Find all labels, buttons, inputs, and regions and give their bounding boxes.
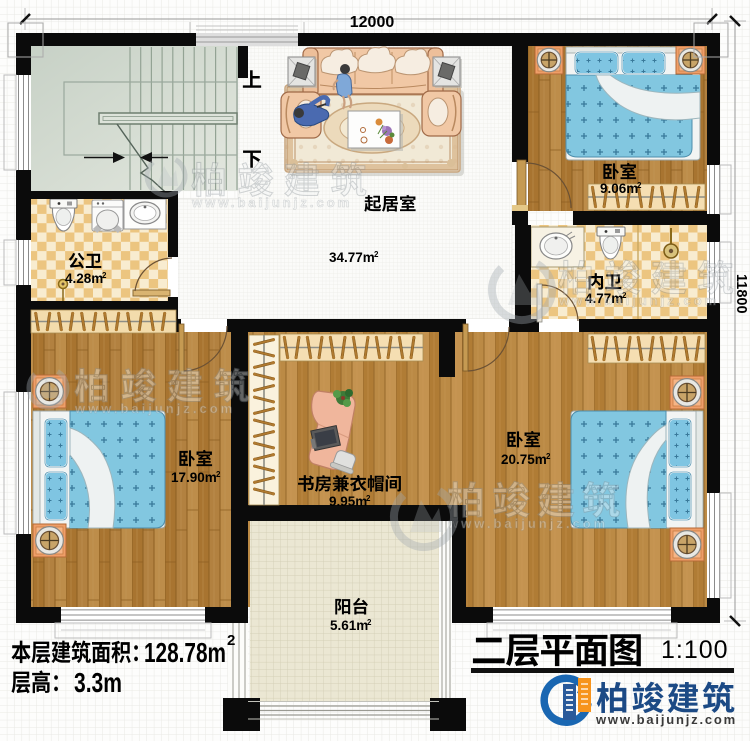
- svg-text:2: 2: [216, 470, 221, 479]
- svg-text:www.baijunjz.com: www.baijunjz.com: [595, 712, 737, 727]
- svg-text:2: 2: [227, 632, 235, 649]
- svg-text:2: 2: [367, 618, 372, 627]
- svg-text:3.3m: 3.3m: [74, 667, 122, 698]
- svg-text:9.95m: 9.95m: [329, 494, 367, 509]
- svg-text:20.75m: 20.75m: [501, 452, 547, 467]
- svg-text:www.baijunjz.com: www.baijunjz.com: [74, 401, 235, 416]
- svg-text:17.90m: 17.90m: [171, 470, 217, 485]
- svg-text:2: 2: [637, 181, 642, 190]
- svg-text:9.06m: 9.06m: [600, 181, 638, 196]
- svg-text:www.baijunjz.com: www.baijunjz.com: [558, 293, 719, 308]
- svg-text:2: 2: [102, 271, 107, 280]
- svg-text:128.78m: 128.78m: [144, 637, 226, 668]
- svg-text:2: 2: [546, 452, 551, 461]
- svg-text:2: 2: [366, 494, 371, 503]
- svg-text:www.baijunjz.com: www.baijunjz.com: [447, 516, 608, 531]
- svg-text:1:100: 1:100: [661, 636, 729, 664]
- svg-text:www.baijunjz.com: www.baijunjz.com: [191, 195, 352, 210]
- svg-text:2: 2: [374, 250, 379, 259]
- svg-text:12000: 12000: [350, 14, 395, 31]
- svg-text:4.28m: 4.28m: [65, 271, 103, 286]
- svg-text:5.61m: 5.61m: [330, 618, 368, 633]
- svg-text:11800: 11800: [733, 274, 749, 314]
- svg-text:34.77m: 34.77m: [329, 250, 375, 265]
